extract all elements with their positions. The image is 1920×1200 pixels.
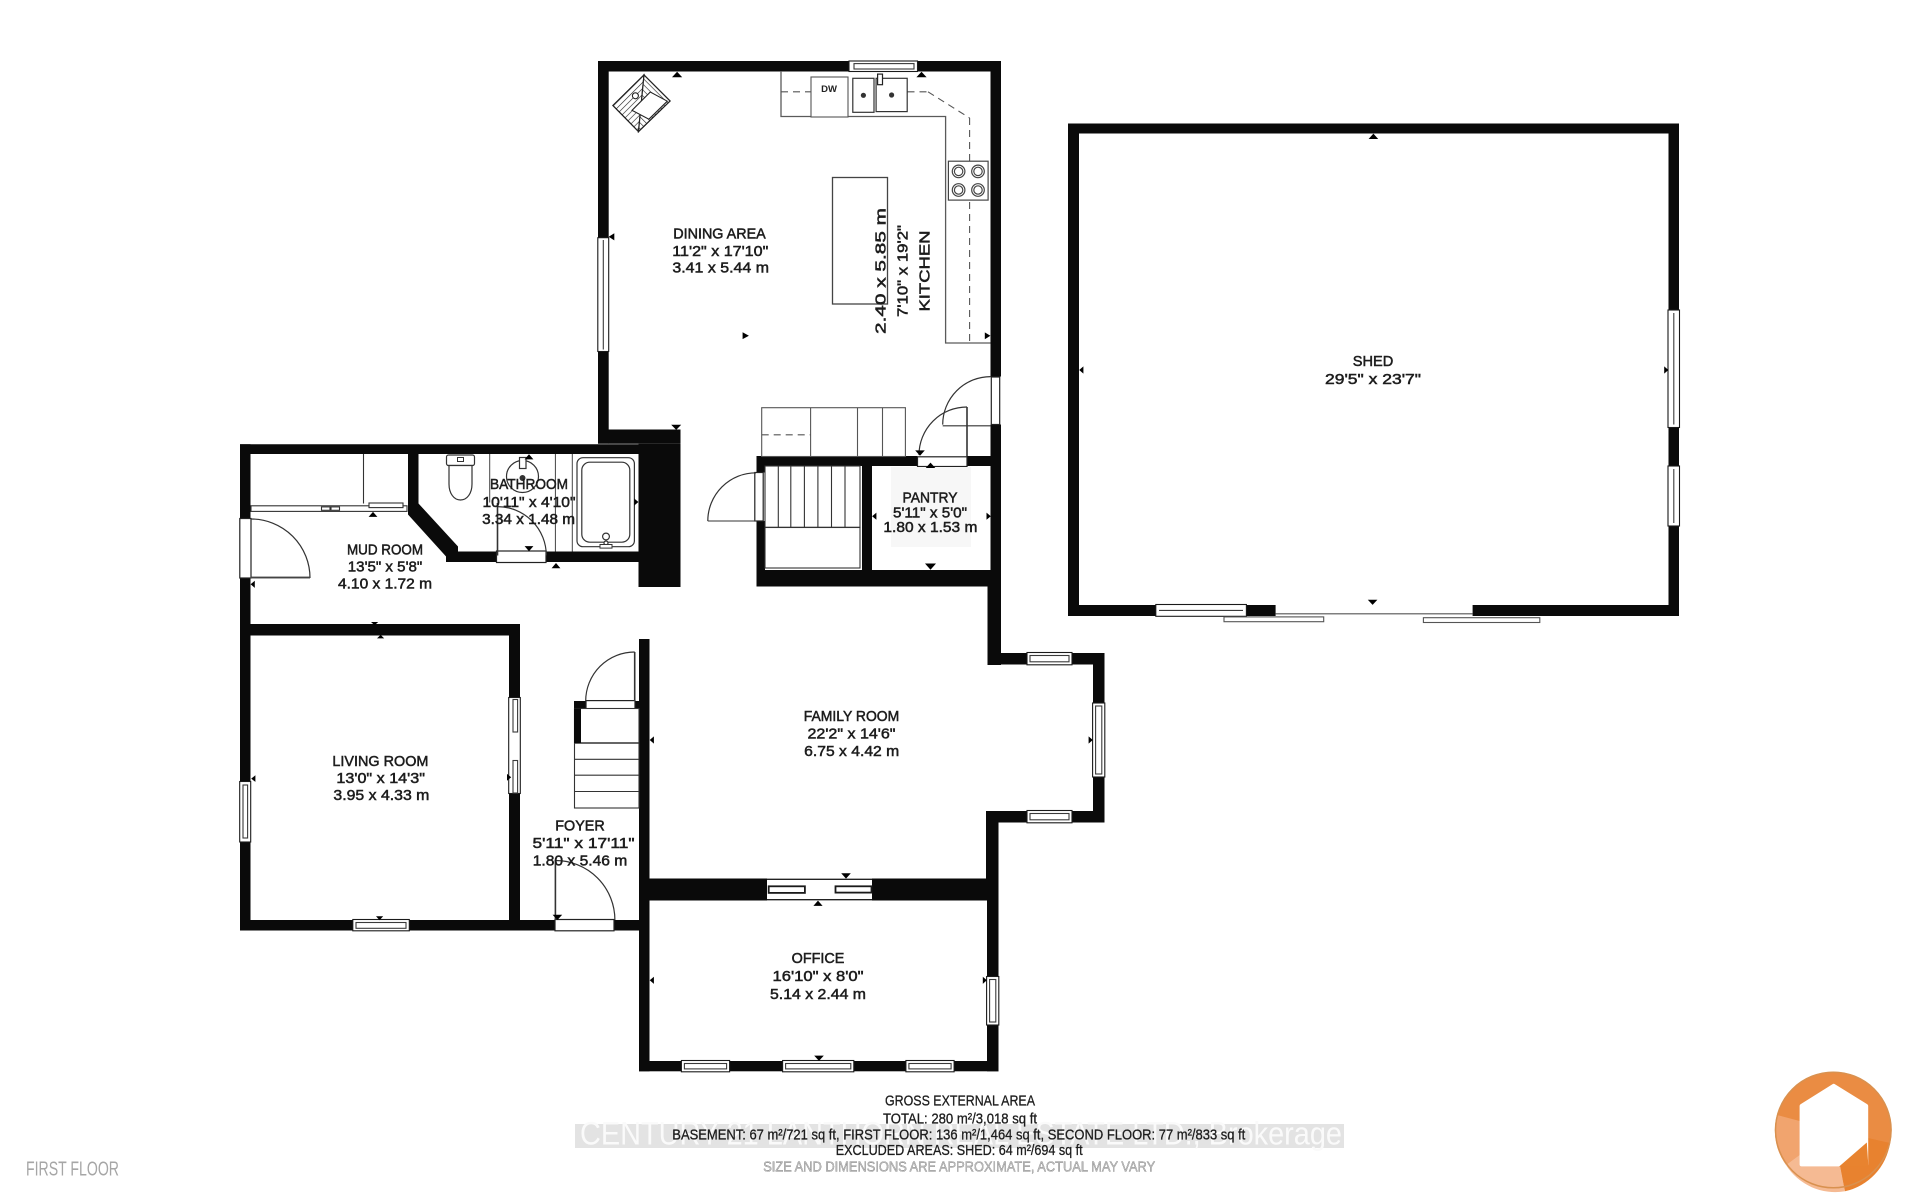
- svg-text:5'11" x 17'11": 5'11" x 17'11": [533, 836, 635, 852]
- svg-text:6.75 x 4.42 m: 6.75 x 4.42 m: [804, 744, 899, 760]
- svg-text:4.10 x 1.72 m: 4.10 x 1.72 m: [338, 577, 432, 593]
- svg-text:TOTAL: 280 m²/3,018 sq ft: TOTAL: 280 m²/3,018 sq ft: [883, 1111, 1038, 1128]
- svg-text:5.14 x 2.44 m: 5.14 x 2.44 m: [770, 987, 866, 1003]
- svg-text:MUD ROOM: MUD ROOM: [347, 543, 423, 559]
- svg-text:EXCLUDED AREAS: SHED: 64 m²/69: EXCLUDED AREAS: SHED: 64 m²/694 sq ft: [836, 1142, 1084, 1159]
- svg-text:FIRST FLOOR: FIRST FLOOR: [26, 1159, 119, 1181]
- svg-text:FAMILY ROOM: FAMILY ROOM: [804, 709, 900, 725]
- svg-text:3.41 x 5.44 m: 3.41 x 5.44 m: [672, 260, 769, 276]
- svg-text:11'2" x 17'10": 11'2" x 17'10": [672, 244, 768, 260]
- svg-text:DW: DW: [821, 84, 837, 95]
- svg-text:BASEMENT: 67 m²/721 sq ft, FIR: BASEMENT: 67 m²/721 sq ft, FIRST FLOOR: …: [672, 1127, 1246, 1144]
- svg-text:SHED: SHED: [1353, 354, 1394, 370]
- svg-text:DINING AREA: DINING AREA: [673, 226, 766, 242]
- svg-text:BATHROOM: BATHROOM: [490, 477, 568, 493]
- svg-text:PANTRY: PANTRY: [903, 491, 958, 507]
- svg-text:10'11" x 4'10": 10'11" x 4'10": [483, 495, 576, 511]
- svg-text:FOYER: FOYER: [555, 819, 605, 835]
- svg-text:3.34 x 1.48 m: 3.34 x 1.48 m: [482, 512, 575, 528]
- svg-text:2.40 x 5.85 m: 2.40 x 5.85 m: [874, 208, 890, 334]
- svg-text:KITCHEN: KITCHEN: [918, 231, 934, 312]
- svg-text:22'2" x 14'6": 22'2" x 14'6": [808, 726, 896, 742]
- svg-text:OFFICE: OFFICE: [792, 951, 845, 967]
- svg-text:13'0" x 14'3": 13'0" x 14'3": [336, 771, 425, 787]
- svg-text:SIZE AND DIMENSIONS ARE APPROX: SIZE AND DIMENSIONS ARE APPROXIMATE, ACT…: [763, 1159, 1155, 1176]
- svg-text:7'10" x 19'2": 7'10" x 19'2": [896, 225, 912, 317]
- svg-text:3.95 x 4.33 m: 3.95 x 4.33 m: [333, 788, 429, 804]
- svg-text:13'5" x 5'8": 13'5" x 5'8": [348, 560, 423, 576]
- svg-text:1.80 x 5.46 m: 1.80 x 5.46 m: [533, 854, 628, 870]
- svg-text:LIVING ROOM: LIVING ROOM: [332, 754, 428, 770]
- svg-text:GROSS EXTERNAL AREA: GROSS EXTERNAL AREA: [885, 1093, 1035, 1110]
- svg-text:29'5" x 23'7": 29'5" x 23'7": [1325, 372, 1421, 388]
- svg-text:16'10" x 8'0": 16'10" x 8'0": [773, 969, 864, 985]
- svg-text:1.80 x 1.53 m: 1.80 x 1.53 m: [883, 520, 977, 536]
